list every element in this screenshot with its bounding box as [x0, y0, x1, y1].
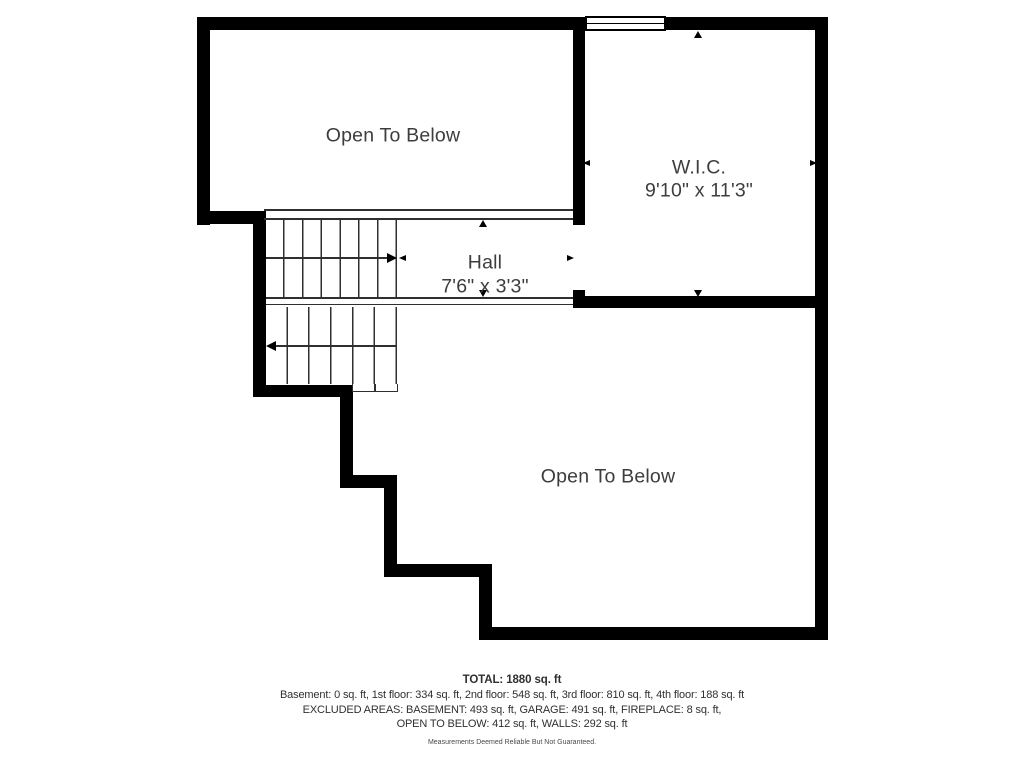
stair-tread-line [374, 384, 376, 391]
staircase-down-arrow-icon [266, 341, 276, 351]
room-label-hall: Hall [468, 252, 502, 275]
window-mullion [587, 23, 664, 25]
hall-bottom-edge-line-2 [266, 304, 573, 306]
wall-step2-vertical [384, 475, 397, 577]
wall-stair-bottom [253, 385, 352, 397]
staircase-up-direction-line [266, 257, 388, 259]
summary-excluded-areas-line1: EXCLUDED AREAS: BASEMENT: 493 sq. ft, GA… [0, 703, 1024, 718]
room-dimensions-wic: 9'10" x 11'3" [645, 180, 753, 203]
hall-top-edge-line-1 [264, 209, 573, 211]
staircase-down-direction-line [276, 345, 397, 347]
summary-excluded-areas-line2: OPEN TO BELOW: 412 sq. ft, WALLS: 292 sq… [0, 717, 1024, 732]
wic-width-arrow-left-icon [583, 160, 590, 166]
hall-width-arrow-right-icon [567, 255, 574, 261]
summary-disclaimer: Measurements Deemed Reliable But Not Gua… [0, 739, 1024, 746]
room-label-wic: W.I.C. [672, 157, 726, 180]
staircase-landing-step [352, 384, 398, 392]
wall-bottom [479, 627, 828, 640]
room-label-open-to-below-upper: Open To Below [326, 125, 461, 148]
wall-stair-left [253, 211, 266, 397]
window-icon [585, 16, 666, 31]
floor-plan: Open To Below W.I.C. 9'10" x 11'3" Hall … [0, 0, 1024, 768]
wic-depth-arrow-down-icon [694, 290, 702, 297]
room-label-open-to-below-lower: Open To Below [541, 466, 676, 489]
wall-wic-left [573, 17, 585, 225]
wic-depth-arrow-up-icon [694, 31, 702, 38]
wall-left-upper [197, 17, 210, 225]
area-summary: TOTAL: 1880 sq. ft Basement: 0 sq. ft, 1… [0, 673, 1024, 746]
summary-total: TOTAL: 1880 sq. ft [0, 673, 1024, 688]
room-dimensions-hall: 7'6" x 3'3" [441, 276, 528, 299]
staircase-up-arrow-icon [387, 253, 397, 263]
hall-depth-arrow-up-icon [479, 220, 487, 227]
wall-right [815, 17, 828, 640]
wall-step2-horizontal [384, 564, 492, 577]
wall-top [197, 17, 828, 30]
hall-width-arrow-left-icon [399, 255, 406, 261]
wic-width-arrow-right-icon [810, 160, 817, 166]
wall-lower-room-top [573, 296, 828, 308]
summary-floor-breakdown: Basement: 0 sq. ft, 1st floor: 334 sq. f… [0, 688, 1024, 703]
wall-step1-vertical [340, 385, 353, 488]
